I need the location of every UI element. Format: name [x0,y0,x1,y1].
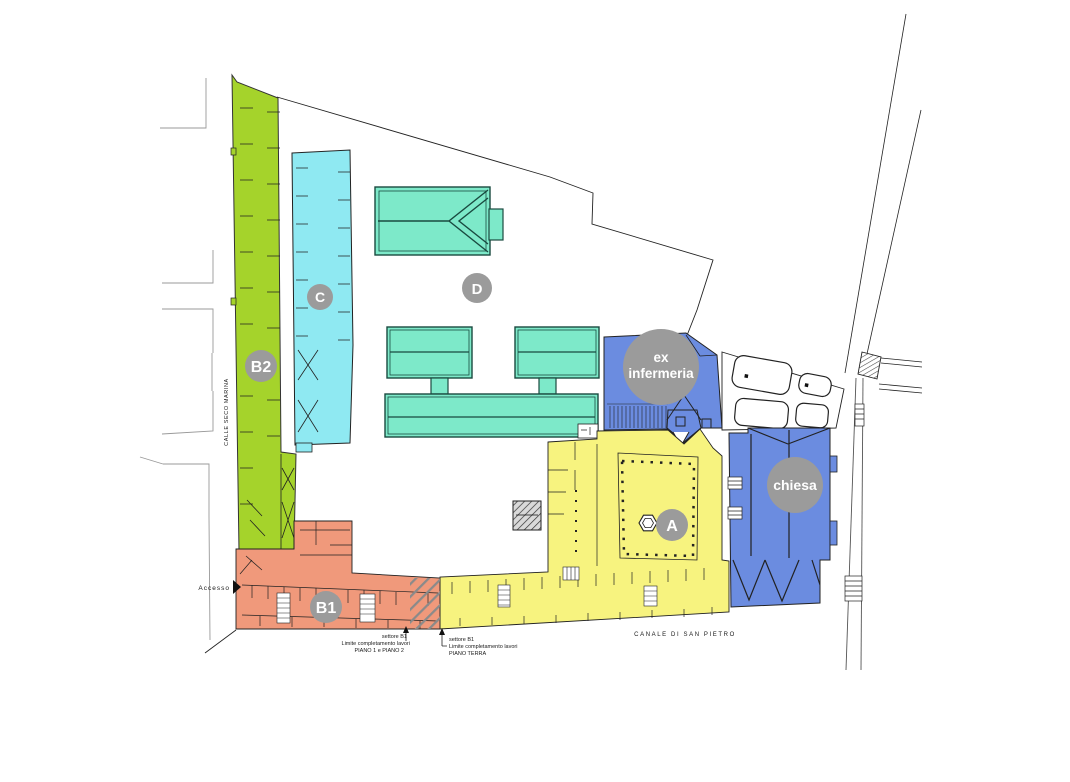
ex-infermeria-label-line1: ex [653,350,669,365]
c-label: C [315,289,325,305]
b1-label: B1 [316,600,337,617]
courtyard-hatched-structure [513,501,541,530]
annotation2-line3: PIANO TERRA [449,651,487,657]
accesso-label: Accesso [198,585,230,592]
site-plan-page: B2 C D A B1 ex infermeria chiesa CALLE S… [0,0,1070,782]
d-label: D [472,281,483,298]
annotation1-line3: PIANO 1 e PIANO 2 [354,648,404,654]
b2-label: B2 [251,359,272,376]
annotation1-line1: settore B1 [382,634,407,640]
annotation1-line2: Limite completamento lavori [342,641,410,647]
street-name-calle: CALLE SECO MARINA [224,378,230,446]
plan-background [0,0,1070,782]
bridge-hatch [858,352,881,379]
b1-limit-hatch [410,578,440,629]
chiesa-label: chiesa [773,477,817,493]
canal-name: CANALE DI SAN PIETRO [634,632,736,638]
annotation2-line2: Limite completamento lavori [449,644,517,650]
site-plan-drawing: B2 C D A B1 ex infermeria chiesa CALLE S… [0,0,1070,782]
ex-infermeria-label-line2: infermeria [628,366,694,381]
a-label: A [666,518,678,535]
annotation2-line1: settore B1 [449,637,474,643]
